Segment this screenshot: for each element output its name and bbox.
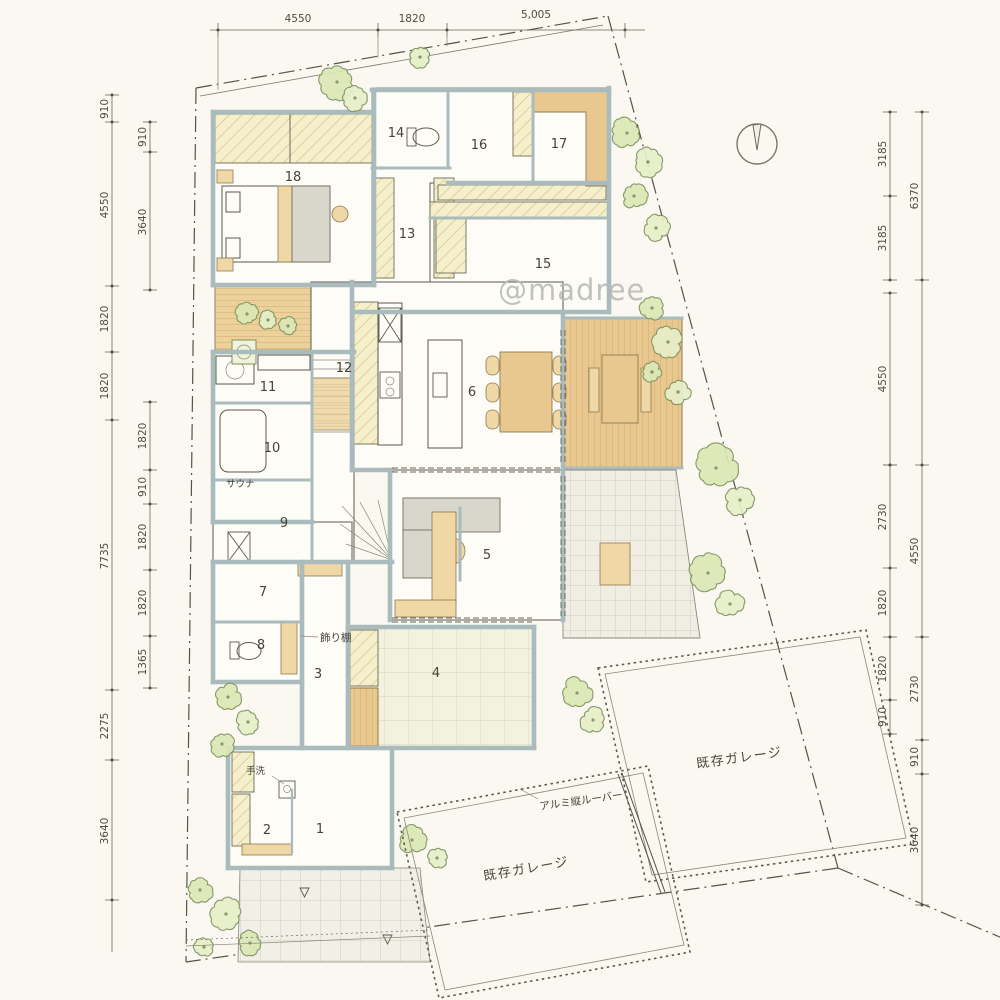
display-shelf (281, 622, 297, 674)
tv-board (432, 512, 456, 604)
terrace-mat (600, 543, 630, 585)
dining-table (500, 352, 552, 432)
dim-label: 4550 (877, 366, 889, 393)
room-number-10: 10 (264, 441, 281, 456)
dim-label: 6370 (909, 183, 921, 210)
room-number-13: 13 (399, 227, 416, 242)
dim-label: 3640 (137, 209, 149, 236)
dim-label: 3640 (909, 827, 921, 854)
room-number-8: 8 (257, 638, 265, 653)
tree (580, 707, 604, 733)
tree (216, 683, 242, 709)
stone-terrace (563, 470, 700, 638)
watermark: @madree (498, 273, 645, 307)
dim-label: 1820 (137, 590, 149, 617)
dim-label: 910 (137, 477, 149, 497)
tree (715, 590, 745, 615)
tree (343, 86, 368, 112)
room-number-11: 11 (260, 380, 277, 395)
dim-label: 2730 (909, 676, 921, 703)
existing-garage-right-label: 既存ガレージ (696, 745, 784, 772)
tree (623, 184, 648, 208)
pantry-shelves (354, 302, 378, 444)
room-number-16: 16 (471, 138, 488, 153)
dim-label: 1365 (137, 649, 149, 676)
room-number-18: 18 (285, 170, 302, 185)
dim-label: 5,005 (521, 9, 551, 21)
dining-set (486, 352, 566, 432)
dim-label: 1820 (399, 13, 426, 25)
sauna-label: サウナ (226, 479, 255, 490)
entrance-approach (238, 868, 430, 962)
dim-label: 7735 (99, 543, 111, 570)
shelf (298, 563, 342, 576)
dim-label: 4550 (285, 13, 312, 25)
dim-label: 910 (99, 99, 111, 119)
dim-chain-right-inner-upper (883, 111, 897, 282)
room-number-5: 5 (483, 548, 491, 563)
existing-garage-bottom-label: 既存ガレージ (482, 855, 570, 885)
tree (410, 47, 430, 68)
tree (644, 214, 670, 241)
dim-label: 2275 (99, 713, 111, 740)
dim-chain-right-outer (915, 111, 929, 907)
tree (725, 487, 754, 516)
hand-wash-label: 手洗 (246, 765, 266, 777)
dim-label: 2730 (877, 504, 889, 531)
dim-label: 4550 (99, 192, 111, 219)
room-number-2: 2 (263, 823, 271, 838)
room-number-17: 17 (551, 137, 568, 152)
dim-label: 910 (137, 127, 149, 147)
dim-label: 910 (909, 747, 921, 767)
room-number-4: 4 (432, 666, 440, 681)
tree (193, 938, 213, 956)
tree (188, 878, 213, 903)
dim-label: 1820 (137, 524, 149, 551)
tree (563, 677, 593, 707)
courtyard-shrub (259, 310, 276, 329)
dim-label: 3640 (99, 818, 111, 845)
room-number-7: 7 (259, 585, 267, 600)
tree (428, 848, 448, 868)
dim-label: 3185 (877, 225, 889, 252)
tree (636, 147, 663, 178)
corridor-floor (302, 562, 348, 748)
room-number-9: 9 (280, 516, 288, 531)
tree (696, 443, 739, 486)
dim-label: 1820 (137, 423, 149, 450)
room-number-14: 14 (388, 126, 405, 141)
tree (400, 825, 427, 853)
room-number-6: 6 (468, 385, 476, 400)
tree (210, 897, 241, 930)
tree (236, 710, 258, 735)
north-needle (753, 124, 761, 150)
dim-label: 1820 (99, 306, 111, 333)
room-number-1: 1 (316, 822, 324, 837)
dim-label: 910 (877, 707, 889, 727)
dim-label: 1820 (877, 656, 889, 683)
room-number-15: 15 (535, 257, 552, 272)
tree (689, 553, 725, 592)
dim-label: 1820 (877, 590, 889, 617)
floor-plan-svg: 4550 1820 5,005 910 4550 1820 1820 7735 … (0, 0, 1000, 1000)
dim-chain-top (210, 23, 645, 37)
louver-leader (520, 789, 538, 799)
display-shelf-label: 飾り棚 (320, 631, 352, 644)
room-number-12: 12 (336, 361, 353, 376)
dim-label: 1820 (99, 373, 111, 400)
room-number-3: 3 (314, 667, 322, 682)
bath-block-floor (213, 352, 312, 522)
site-plan-drawing: 4550 1820 5,005 910 4550 1820 1820 7735 … (0, 0, 1000, 1000)
dim-label: 4550 (909, 538, 921, 565)
tree (612, 117, 639, 147)
north-indicator (737, 124, 777, 164)
aluminum-louver-label: アルミ縦ルーバー (539, 788, 624, 813)
stool (332, 206, 348, 222)
dim-label: 3185 (877, 141, 889, 168)
entry-bench (242, 844, 292, 855)
